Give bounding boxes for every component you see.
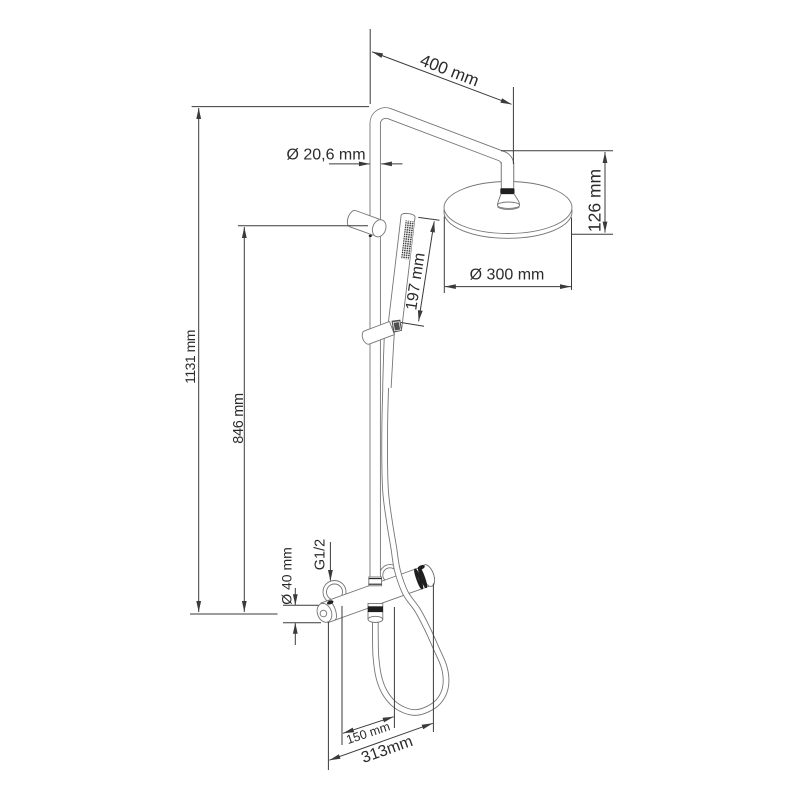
svg-text:Ø 300 mm: Ø 300 mm <box>470 266 545 283</box>
svg-text:G1/2: G1/2 <box>313 539 329 570</box>
svg-text:Ø 20,6 mm: Ø 20,6 mm <box>286 146 365 163</box>
svg-text:Ø 40 mm: Ø 40 mm <box>278 547 294 605</box>
svg-text:846 mm: 846 mm <box>231 393 247 444</box>
svg-text:400 mm: 400 mm <box>417 51 481 91</box>
svg-text:1131 mm: 1131 mm <box>182 330 198 384</box>
svg-text:126 mm: 126 mm <box>585 169 605 232</box>
